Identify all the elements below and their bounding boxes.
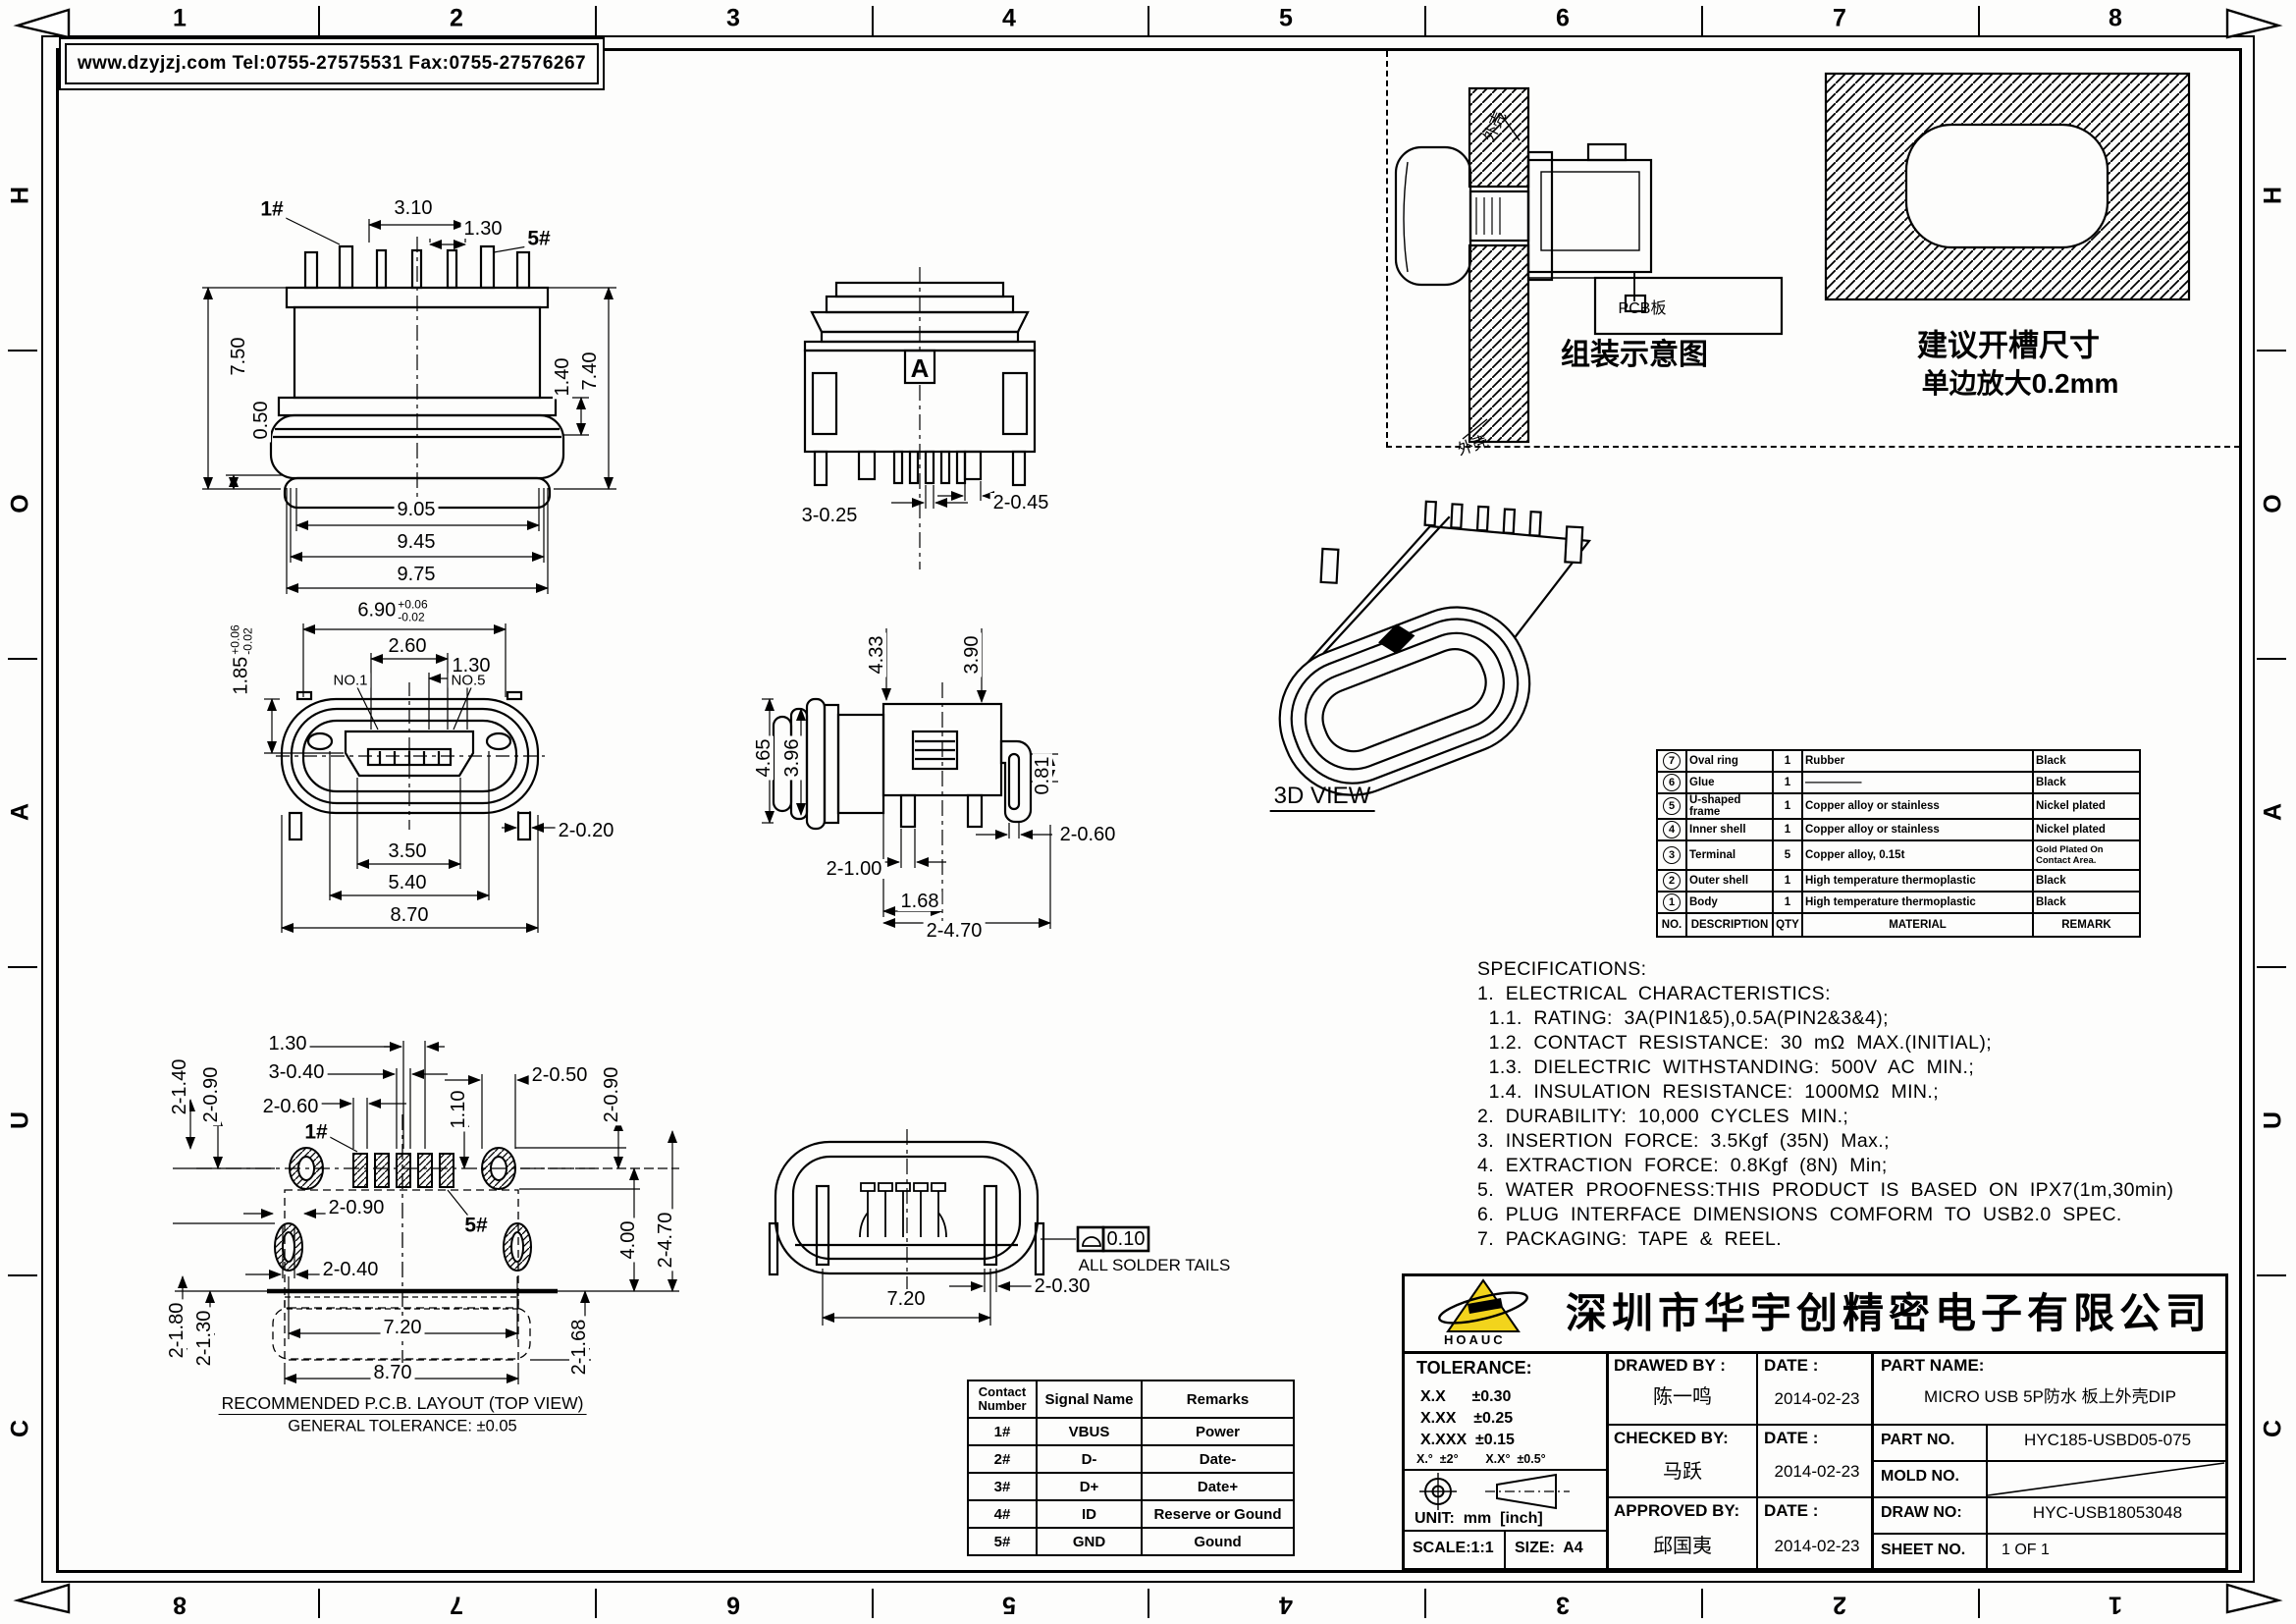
- zone-letter-right: U: [2260, 1111, 2288, 1129]
- zone-letter-right: C: [2260, 1420, 2288, 1437]
- dim-side-l2: 3.96: [782, 736, 802, 781]
- zone-number-top: 5: [1279, 5, 1293, 33]
- dim-front-peg: 2-0.20: [556, 821, 617, 840]
- contact-number: 5#: [968, 1528, 1037, 1555]
- part-remark: Nickel plated: [2033, 819, 2140, 840]
- zone-tick: [8, 1274, 37, 1276]
- parts-row: 1 Body 1 High temperature thermoplastic …: [1657, 892, 2140, 913]
- spec-line: 5. WATER PROOFNESS:THIS PRODUCT IS BASED…: [1477, 1178, 2173, 1203]
- zone-tick: [2257, 1274, 2286, 1276]
- part-balloon: 4: [1663, 821, 1681, 839]
- zone-number-top: 1: [173, 5, 187, 33]
- date-label: DATE :: [1764, 1357, 1818, 1376]
- tolerance-row2: X.XX ±0.25: [1420, 1410, 1513, 1428]
- company-name: 深圳市华宇创精密电子有限公司: [1552, 1276, 2225, 1351]
- part-remark: Black: [2033, 772, 2140, 793]
- zone-number-bottom: 4: [1279, 1591, 1293, 1619]
- approved-date: 2014-02-23: [1764, 1538, 1870, 1556]
- title-block-line: [1606, 1351, 1609, 1568]
- parts-header-material: MATERIAL: [1802, 913, 2033, 937]
- zone-number-top: 3: [726, 5, 740, 33]
- part-desc: Oval ring: [1686, 750, 1773, 772]
- label-front-no5: NO.5: [448, 674, 488, 688]
- tolerance-row3: X.XXX ±0.15: [1420, 1432, 1515, 1449]
- spec-line: 1. ELECTRICAL CHARACTERISTICS:: [1477, 982, 2173, 1006]
- slot-subtitle: 单边放大0.2mm: [1922, 362, 2119, 402]
- contact-header-signal: Signal Name: [1037, 1380, 1142, 1418]
- corner-arrow-bl: [10, 1579, 73, 1618]
- part-qty: 1: [1773, 819, 1802, 840]
- title-block-line: [1756, 1351, 1758, 1568]
- part-no-value: HYC185-USBD05-075: [1992, 1432, 2223, 1450]
- zone-tick: [872, 6, 874, 35]
- parts-row: 5 U-shaped frame 1 Copper alloy or stain…: [1657, 793, 2140, 819]
- dim-pcb-p4: 2-1.40: [170, 1056, 189, 1118]
- part-qty: 1: [1773, 793, 1802, 819]
- zone-tick: [318, 1589, 320, 1618]
- tolerance-row1: X.X ±0.30: [1420, 1388, 1511, 1406]
- part-desc: Terminal: [1686, 840, 1773, 870]
- drawed-by-name: 陈一鸣: [1614, 1386, 1751, 1408]
- draw-no-value: HYC-USB18053048: [1992, 1504, 2223, 1523]
- zone-letter-right: A: [2260, 803, 2288, 821]
- zone-number-top: 8: [2109, 5, 2122, 33]
- spec-line: 1.1. RATING: 3A(PIN1&5),0.5A(PIN2&3&4);: [1477, 1006, 2173, 1031]
- title-block-line: [1871, 1496, 2225, 1498]
- dim-side-b3: 2-4.70: [924, 921, 986, 941]
- dim-top-pad: 2-0.45: [990, 493, 1052, 513]
- dim-rear-b1: 9.05: [395, 500, 439, 519]
- dim-rear-b3: 9.75: [395, 565, 439, 584]
- dim-pcb-p17: 2-1.68: [569, 1317, 589, 1379]
- contact-row: 5# GND Gound: [968, 1528, 1294, 1555]
- part-name-label: PART NAME:: [1881, 1357, 1984, 1376]
- dim-front-height-value: 1.85: [230, 657, 251, 695]
- header-box: www.dzyjzj.com Tel:0755-27575531 Fax:075…: [59, 37, 605, 90]
- part-material: Copper alloy or stainless: [1802, 819, 2033, 840]
- title-block-line: [1606, 1496, 1871, 1498]
- section-marker-a: A: [908, 355, 933, 381]
- dim-pcb-p14: 2-1.30: [194, 1308, 214, 1370]
- label-3d-view: 3D VIEW: [1270, 783, 1375, 812]
- pcb-tolerance-caption: GENERAL TOLERANCE: ±0.05: [288, 1418, 516, 1436]
- dim-pcb-p11: 4.00: [618, 1218, 638, 1263]
- dim-pcb-p13: 2-1.80: [167, 1300, 187, 1362]
- label-pcb-pin5: 5#: [461, 1216, 490, 1236]
- part-remark: Nickel plated: [2033, 793, 2140, 819]
- zone-tick: [8, 966, 37, 968]
- part-qty: 1: [1773, 892, 1802, 913]
- parts-table: 7 Oval ring 1 Rubber Black 6 Glue 1 ————…: [1656, 749, 2141, 938]
- dim-pcb-p6: 1.10: [449, 1088, 468, 1132]
- spec-line: 6. PLUG INTERFACE DIMENSIONS COMFORM TO …: [1477, 1203, 2173, 1227]
- dim-front-width: 6.90+0.06-0.02: [354, 598, 430, 623]
- logo-text: HOAUC: [1444, 1333, 1506, 1347]
- zone-tick: [1701, 1589, 1703, 1618]
- contact-header-number: Contact Number: [968, 1380, 1037, 1418]
- tol-plus: +0.06: [229, 624, 241, 654]
- contact-signal: D-: [1037, 1445, 1142, 1473]
- dim-front-height-tol: +0.06-0.02: [229, 624, 253, 654]
- part-balloon: 1: [1663, 893, 1681, 911]
- dim-side-b2: 1.68: [898, 892, 942, 911]
- parts-header-desc: DESCRIPTION: [1686, 913, 1773, 937]
- zone-tick: [1978, 6, 1980, 35]
- label-rear-pin1: 1#: [257, 199, 286, 220]
- dim-pcb-p2: 3-0.40: [266, 1062, 328, 1082]
- part-balloon: 2: [1663, 872, 1681, 890]
- zone-tick: [595, 6, 597, 35]
- contact-signal: ID: [1037, 1500, 1142, 1528]
- zone-tick: [1701, 6, 1703, 35]
- part-no-label: PART NO.: [1881, 1432, 1954, 1449]
- zone-letter-left: A: [7, 803, 35, 821]
- dim-rear-h2: 0.50: [251, 399, 271, 443]
- parts-header-remark: REMARK: [2033, 913, 2140, 937]
- parts-row: 7 Oval ring 1 Rubber Black: [1657, 750, 2140, 772]
- zone-number-bottom: 8: [173, 1591, 187, 1619]
- title-block-line: [1405, 1469, 1606, 1471]
- zone-number-bottom: 3: [1556, 1591, 1570, 1619]
- part-material: High temperature thermoplastic: [1802, 870, 2033, 892]
- parts-header-no: NO.: [1657, 913, 1686, 937]
- zone-tick: [318, 6, 320, 35]
- dim-pcb-p1: 1.30: [266, 1034, 310, 1054]
- dim-rear-b2: 9.45: [395, 532, 439, 552]
- contact-remark: Date-: [1142, 1445, 1294, 1473]
- contact-row: 1# VBUS Power: [968, 1418, 1294, 1445]
- pcb-pads: [267, 1148, 558, 1291]
- scale-label: SCALE:1:1: [1413, 1540, 1494, 1557]
- zone-letter-left: U: [7, 1111, 35, 1129]
- title-block-line: [1871, 1424, 2225, 1426]
- zone-number-bottom: 7: [450, 1591, 463, 1619]
- contact-signal: VBUS: [1037, 1418, 1142, 1445]
- part-desc: Outer shell: [1686, 870, 1773, 892]
- tolerance-angles: X.° ±2° X.X° ±0.5°: [1416, 1453, 1546, 1467]
- tol-minus: -0.02: [398, 611, 427, 623]
- contact-number: 2#: [968, 1445, 1037, 1473]
- contact-row: 2# D- Date-: [968, 1445, 1294, 1473]
- contact-number: 3#: [968, 1473, 1037, 1500]
- flatness-value: 0.10: [1104, 1229, 1148, 1249]
- spec-line: 2. DURABILITY: 10,000 CYCLES MIN.;: [1477, 1105, 2173, 1129]
- dim-side-r2: 2-0.60: [1057, 825, 1119, 844]
- zone-tick: [8, 350, 37, 352]
- dim-front-width-tol: +0.06-0.02: [398, 598, 427, 623]
- zone-tick: [1424, 1589, 1426, 1618]
- view-top: [756, 255, 1109, 579]
- part-balloon: 6: [1663, 774, 1681, 791]
- checked-date: 2014-02-23: [1764, 1463, 1870, 1482]
- part-name-value: MICRO USB 5P防水 板上外壳DIP: [1881, 1388, 2219, 1407]
- part-material: Copper alloy, 0.15t: [1802, 840, 2033, 870]
- dim-rear-h1: 7.50: [229, 335, 248, 379]
- title-block-line: [1606, 1424, 1871, 1426]
- spec-line: 7. PACKAGING: TAPE & REEL.: [1477, 1227, 2173, 1252]
- zone-letter-right: H: [2260, 187, 2288, 204]
- website-contact-text: www.dzyjzj.com Tel:0755-27575531 Fax:075…: [78, 53, 586, 75]
- tol-minus: -0.02: [241, 624, 254, 654]
- dim-front-width-value: 6.90: [357, 599, 396, 621]
- part-balloon: 7: [1663, 752, 1681, 770]
- contact-row: 4# ID Reserve or Gound: [968, 1500, 1294, 1528]
- checked-by-name: 马跃: [1614, 1461, 1751, 1483]
- dim-rear-h4: 7.40: [580, 350, 600, 394]
- zone-number-top: 6: [1556, 5, 1570, 33]
- dim-side-l1: 4.65: [754, 736, 774, 781]
- side-outline: [774, 699, 1031, 829]
- zone-letter-right: O: [2260, 494, 2288, 513]
- part-remark: Gold Plated On Contact Area.: [2033, 840, 2140, 870]
- zone-number-bottom: 6: [726, 1591, 740, 1619]
- header-box-inner: www.dzyjzj.com Tel:0755-27575531 Fax:075…: [65, 43, 599, 84]
- bottom-outline: [770, 1142, 1148, 1274]
- parts-row: 2 Outer shell 1 High temperature thermop…: [1657, 870, 2140, 892]
- dim-bottom-b2: 2-0.30: [1032, 1276, 1094, 1296]
- zone-tick: [595, 1589, 597, 1618]
- tolerance-title: TOLERANCE:: [1416, 1359, 1532, 1379]
- part-desc: Inner shell: [1686, 819, 1773, 840]
- part-material: —————: [1802, 772, 2033, 793]
- title-block-line: [1405, 1351, 2225, 1354]
- zone-number-top: 2: [450, 5, 463, 33]
- part-desc: Glue: [1686, 772, 1773, 793]
- solder-tails-note: ALL SOLDER TAILS: [1079, 1256, 1231, 1275]
- contact-remark: Date+: [1142, 1473, 1294, 1500]
- zone-tick: [2257, 966, 2286, 968]
- contact-table: Contact Number Signal Name Remarks 1# VB…: [967, 1380, 1295, 1556]
- unit-label: UNIT: mm [inch]: [1415, 1510, 1543, 1528]
- dim-bottom-b1: 7.20: [884, 1289, 929, 1309]
- checked-by-label: CHECKED BY:: [1614, 1430, 1729, 1448]
- contact-row: 3# D+ Date+: [968, 1473, 1294, 1500]
- dim-top-pin: 3-0.25: [799, 506, 861, 525]
- contact-number: 1#: [968, 1418, 1037, 1445]
- pcb-layout-caption: RECOMMENDED P.C.B. LAYOUT (TOP VIEW): [219, 1393, 587, 1415]
- zone-tick: [8, 658, 37, 660]
- label-pcb-pin1: 1#: [301, 1122, 330, 1143]
- part-material: Rubber: [1802, 750, 2033, 772]
- contact-number: 4#: [968, 1500, 1037, 1528]
- part-balloon: 5: [1663, 797, 1681, 815]
- zone-number-top: 4: [1002, 5, 1016, 33]
- size-label: SIZE: A4: [1515, 1540, 1583, 1557]
- parts-row: 4 Inner shell 1 Copper alloy or stainles…: [1657, 819, 2140, 840]
- zone-number-bottom: 5: [1002, 1591, 1016, 1619]
- dim-pcb-p3: 2-0.60: [260, 1097, 322, 1116]
- zone-letter-left: O: [7, 494, 35, 513]
- part-desc: U-shaped frame: [1686, 793, 1773, 819]
- part-qty: 1: [1773, 772, 1802, 793]
- dim-front-b2: 5.40: [386, 873, 430, 893]
- spec-line: 1.4. INSULATION RESISTANCE: 1000MΩ MIN.;: [1477, 1080, 2173, 1105]
- parts-header-qty: QTY: [1773, 913, 1802, 937]
- part-material: High temperature thermoplastic: [1802, 892, 2033, 913]
- part-material: Copper alloy or stainless: [1802, 793, 2033, 819]
- contact-signal: D+: [1037, 1473, 1142, 1500]
- part-balloon: 3: [1663, 846, 1681, 864]
- dim-pcb-p16: 8.70: [371, 1363, 415, 1382]
- corner-arrow-tr: [2223, 4, 2286, 43]
- sheet-no-label: SHEET NO.: [1881, 1542, 1965, 1559]
- projection-symbol-icon: [1411, 1473, 1602, 1510]
- dim-front-b1: 3.50: [386, 841, 430, 861]
- dim-rear-w1: 3.10: [392, 198, 436, 218]
- slot-title: 建议开槽尺寸: [1917, 321, 2100, 365]
- draw-no-label: DRAW NO:: [1881, 1504, 1962, 1522]
- dim-pcb-p12: 2-4.70: [656, 1210, 675, 1272]
- dim-pcb-p7: 2-0.50: [529, 1065, 591, 1085]
- contact-header-remarks: Remarks: [1142, 1380, 1294, 1418]
- dim-side-r1: 0.81: [1033, 754, 1052, 798]
- title-block-line: [1504, 1530, 1506, 1568]
- contact-remark: Reserve or Gound: [1142, 1500, 1294, 1528]
- dim-front-w2: 2.60: [386, 636, 430, 656]
- zone-tick: [1148, 1589, 1149, 1618]
- part-remark: Black: [2033, 892, 2140, 913]
- drawing-sheet: 1 2 3 4 5 6 7 8 8 7 6 5 4 3 2 1 H O A U …: [0, 0, 2296, 1624]
- title-block: HOAUC 深圳市华宇创精密电子有限公司 TOLERANCE: X.X ±0.3…: [1402, 1273, 2228, 1571]
- spec-line: 3. INSERTION FORCE: 3.5Kgf (35N) Max.;: [1477, 1129, 2173, 1154]
- zone-tick: [1148, 6, 1149, 35]
- specifications-block: SPECIFICATIONS: 1. ELECTRICAL CHARACTERI…: [1477, 957, 2173, 1252]
- part-desc: Body: [1686, 892, 1773, 913]
- dim-rear-h3: 1.40: [553, 355, 572, 400]
- part-remark: Black: [2033, 870, 2140, 892]
- zone-letter-left: H: [7, 187, 35, 204]
- dim-side-t1: 4.33: [867, 633, 886, 677]
- sheet-no-value: 1 OF 1: [2002, 1542, 2050, 1559]
- dim-pcb-p5: 2-0.90: [201, 1064, 221, 1126]
- pcb-board-label: PCB板: [1619, 295, 1667, 318]
- label-rear-pin5: 5#: [524, 229, 553, 249]
- approved-by-label: APPROVED BY:: [1614, 1502, 1739, 1521]
- part-qty: 5: [1773, 840, 1802, 870]
- parts-row: 3 Terminal 5 Copper alloy, 0.15t Gold Pl…: [1657, 840, 2140, 870]
- approved-by-name: 邱国夷: [1614, 1536, 1751, 1557]
- date-label: DATE :: [1764, 1430, 1818, 1448]
- view-bottom: [766, 1129, 1237, 1365]
- zone-tick: [1978, 1589, 1980, 1618]
- title-block-line: [1871, 1533, 2225, 1535]
- dim-pcb-p9: 2-0.90: [326, 1198, 388, 1218]
- zone-number-bottom: 2: [1833, 1591, 1846, 1619]
- contact-signal: GND: [1037, 1528, 1142, 1555]
- dim-rear-pitch: 1.30: [461, 219, 506, 239]
- part-qty: 1: [1773, 870, 1802, 892]
- contact-header-row: Contact Number Signal Name Remarks: [968, 1380, 1294, 1418]
- dim-side-t2: 3.90: [962, 633, 982, 677]
- zone-tick: [2257, 658, 2286, 660]
- assembly-caption: 组装示意图: [1561, 330, 1708, 373]
- contact-remark: Power: [1142, 1418, 1294, 1445]
- zone-tick: [2257, 350, 2286, 352]
- part-qty: 1: [1773, 750, 1802, 772]
- dim-front-height: 1.85+0.06-0.02: [229, 622, 253, 697]
- zone-tick: [1424, 6, 1426, 35]
- corner-arrow-br: [2223, 1579, 2286, 1618]
- dim-side-b1: 2-1.00: [824, 859, 885, 879]
- mold-no-blank-slash: [1988, 1462, 2225, 1496]
- dim-front-b3: 8.70: [388, 905, 432, 925]
- dim-pcb-p15: 7.20: [381, 1318, 425, 1337]
- parts-row: 6 Glue 1 ————— Black: [1657, 772, 2140, 793]
- contact-remark: Gound: [1142, 1528, 1294, 1555]
- parts-header-row: NO. DESCRIPTION QTY MATERIAL REMARK: [1657, 913, 2140, 937]
- zone-number-top: 7: [1833, 5, 1846, 33]
- drawed-by-label: DRAWED BY :: [1614, 1357, 1726, 1376]
- spec-line: 1.2. CONTACT RESISTANCE: 30 mΩ MAX.(INIT…: [1477, 1031, 2173, 1056]
- tol-plus: +0.06: [398, 598, 427, 611]
- mold-no-label: MOLD NO.: [1881, 1468, 1959, 1486]
- spec-line: 1.3. DIELECTRIC WITHSTANDING: 500V AC MI…: [1477, 1056, 2173, 1080]
- zone-number-bottom: 1: [2109, 1591, 2122, 1619]
- date-label: DATE :: [1764, 1502, 1818, 1521]
- label-front-no1: NO.1: [330, 674, 370, 688]
- dim-pcb-p8: 2-0.90: [602, 1064, 621, 1126]
- spec-line: SPECIFICATIONS:: [1477, 957, 2173, 982]
- drawed-date: 2014-02-23: [1764, 1390, 1870, 1409]
- dim-pcb-p10: 2-0.40: [320, 1260, 382, 1279]
- zone-letter-left: C: [7, 1420, 35, 1437]
- spec-line: 4. EXTRACTION FORCE: 0.8Kgf (8N) Min;: [1477, 1154, 2173, 1178]
- part-remark: Black: [2033, 750, 2140, 772]
- zone-tick: [872, 1589, 874, 1618]
- iso-body: [1221, 452, 1645, 815]
